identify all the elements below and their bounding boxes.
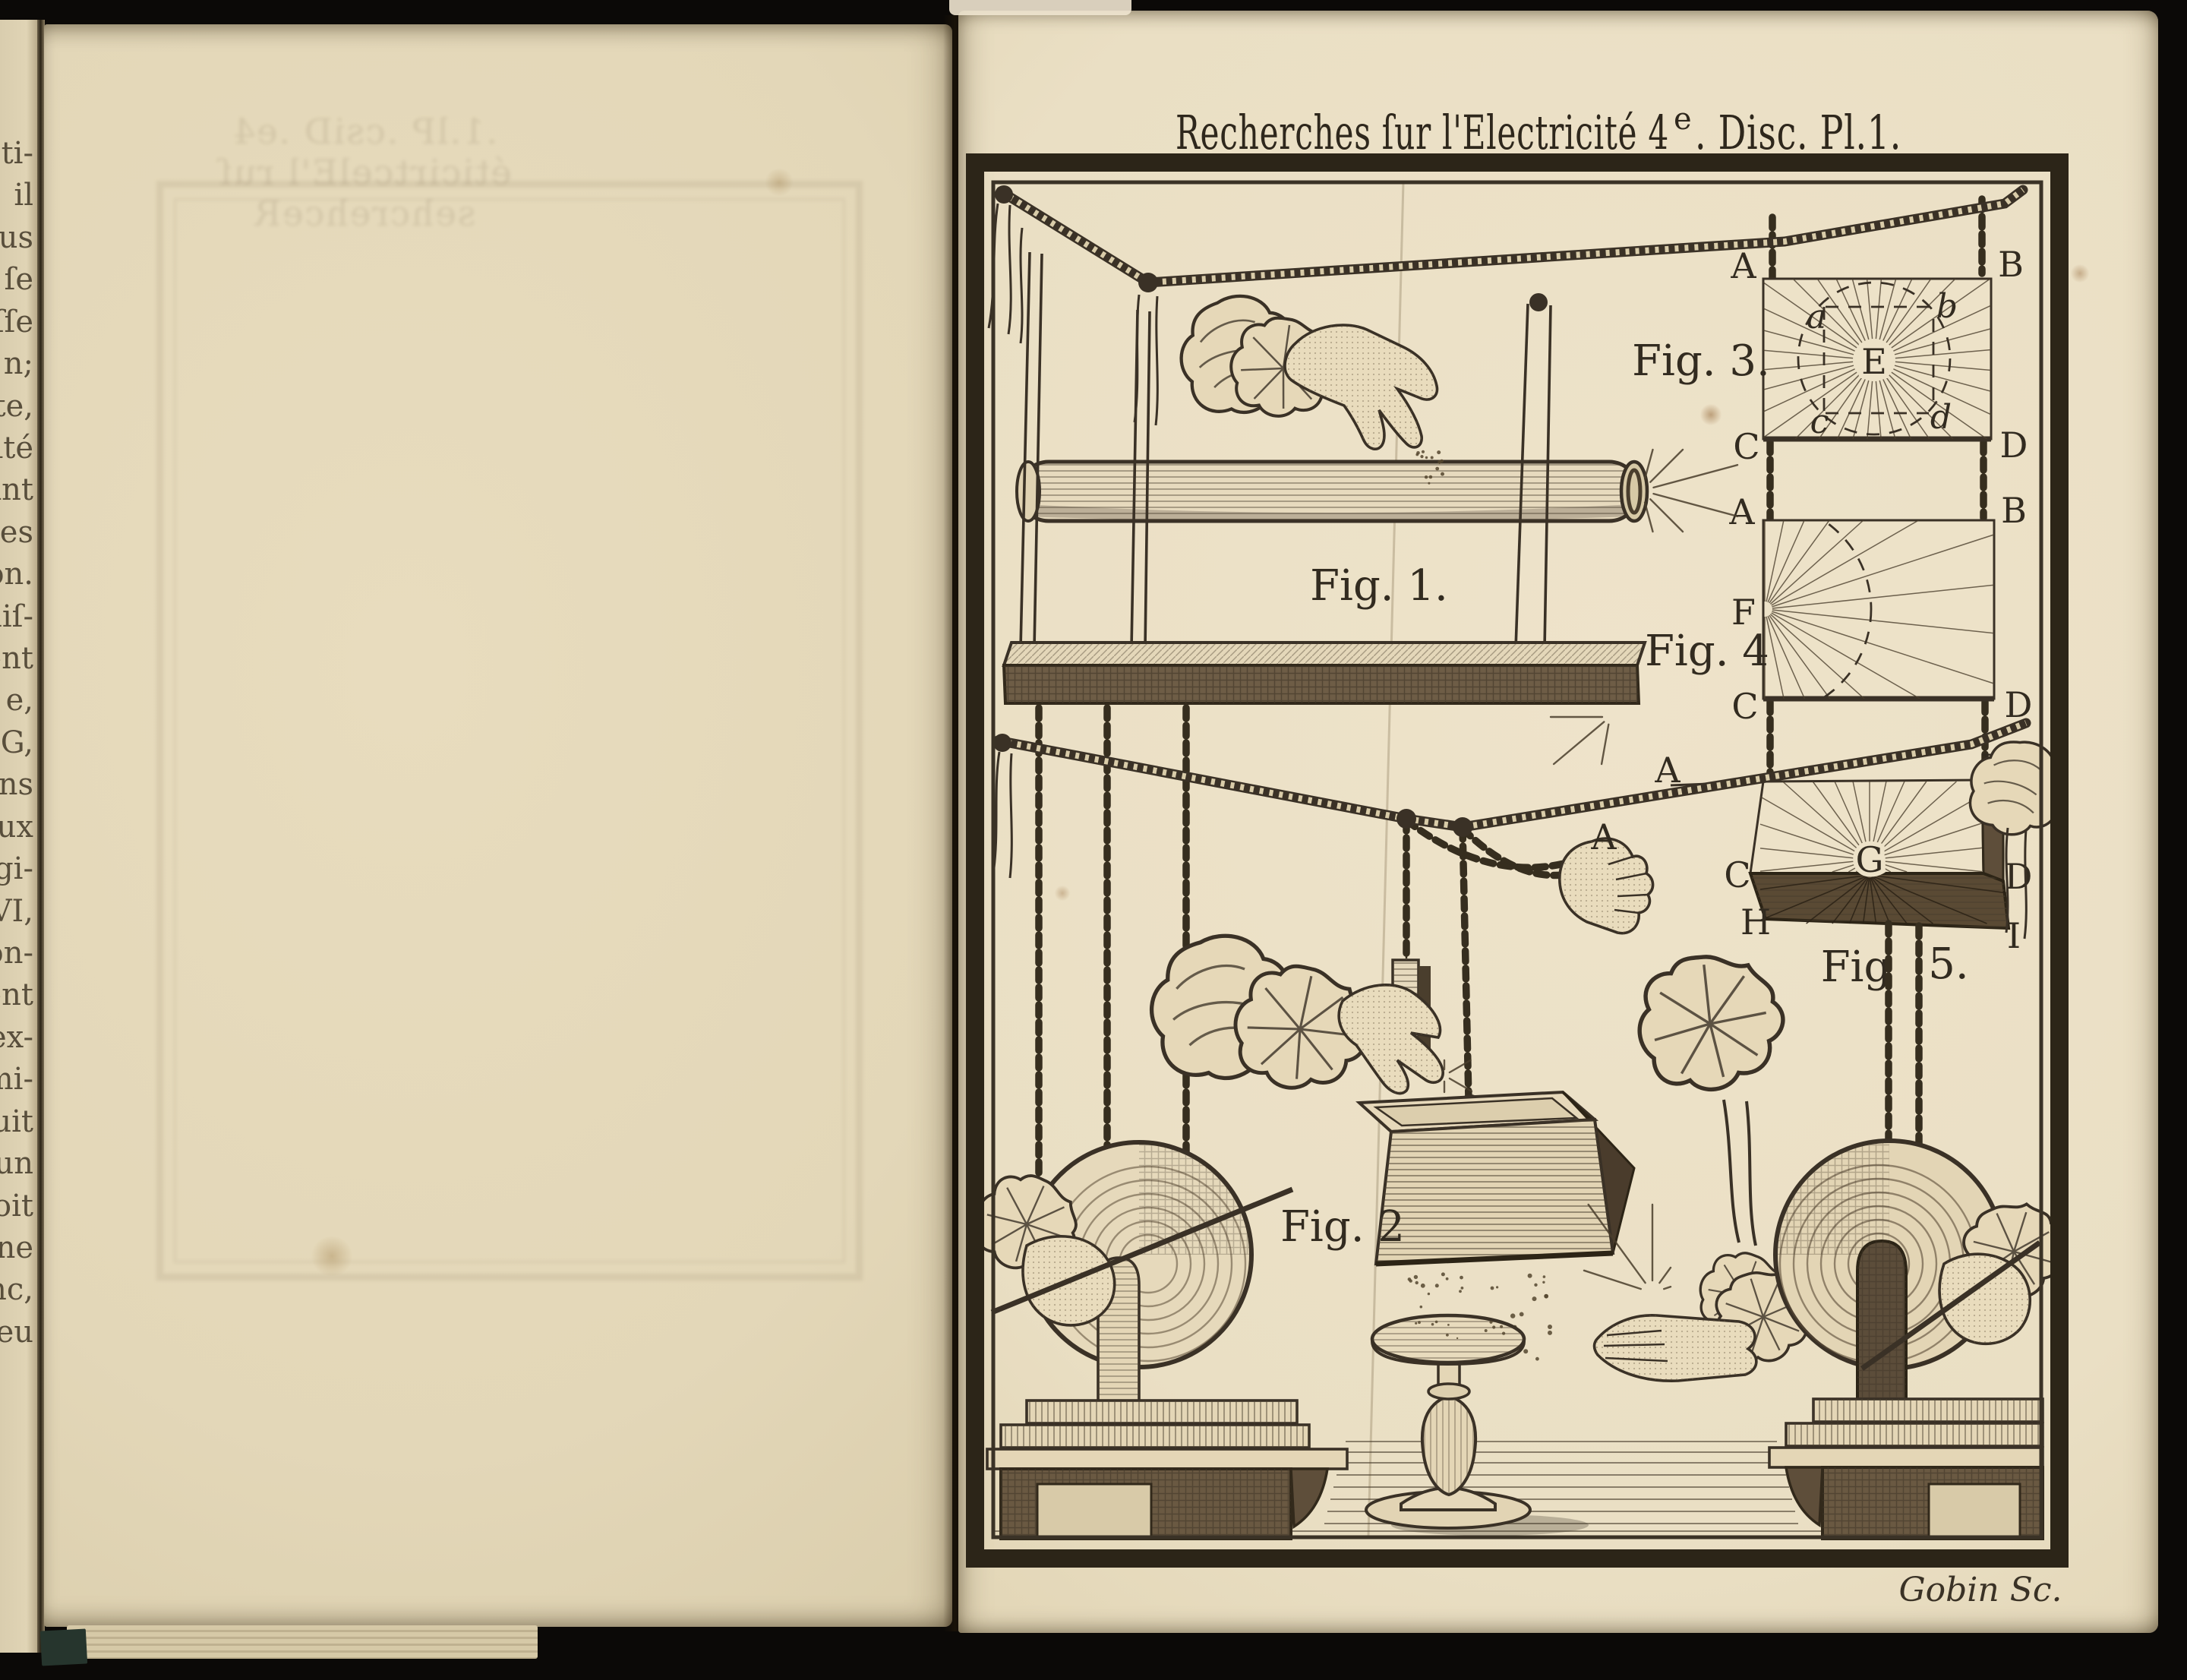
fig4-label: Fig. 4	[1645, 627, 1769, 676]
fig3-letter-B: B	[1998, 244, 2024, 285]
fig1-label: Fig. 1.	[1310, 561, 1448, 611]
cylinder-end-spray	[1645, 450, 1737, 532]
rope-knot	[1138, 273, 1158, 292]
rope-spray	[1551, 717, 1608, 764]
right-table-bracket	[1786, 1467, 1822, 1525]
fig3-diagram: A B C D a b c d E Fig. 3.	[1632, 244, 2028, 467]
right-tabletop	[1769, 1448, 2043, 1467]
left-table-panel	[1037, 1484, 1151, 1539]
rope-slings	[1021, 252, 1551, 649]
fig3-letter-d: d	[1930, 398, 1952, 437]
rope-tassel	[993, 752, 1011, 878]
fig2-label: Fig. 2	[1280, 1202, 1405, 1252]
fig5-letter-I: I	[2007, 915, 2021, 956]
left-tabletop	[987, 1449, 1347, 1469]
chain-hand-cuff	[1633, 949, 1790, 1097]
fig5-letter-C: C	[1724, 854, 1750, 895]
title-superscript: e	[1674, 102, 1692, 137]
rope-knot	[995, 185, 1013, 204]
fig3-letter-a: a	[1807, 298, 1826, 336]
chain-hand-cloth-strand	[1724, 1100, 1756, 1246]
right-machine	[1769, 1141, 2080, 1539]
left-globe-shading	[1139, 1142, 1251, 1255]
engraving-scene: A B C D a b c d E Fig. 3. A B C D F Fig.…	[962, 102, 2080, 1609]
right-globe-shading	[1775, 1141, 1889, 1255]
fig5-letter-H: H	[1740, 902, 1771, 943]
fig3-letter-C: C	[1733, 426, 1759, 467]
fig3-letter-c: c	[1810, 403, 1829, 441]
fig3-letter-E: E	[1861, 341, 1887, 382]
fig4-letter-B: B	[2001, 490, 2027, 531]
book-scan: { "book": { "left_page": { "fragments": …	[0, 0, 2187, 1680]
fig1-cylinder	[1017, 450, 1737, 532]
fig3-letter-A: A	[1730, 245, 1756, 286]
title-rest: . Disc. Pl.1.	[1695, 105, 1901, 160]
fig4-diagram: A B C D F Fig. 4	[1645, 490, 2032, 727]
pedestal-stand	[1366, 1315, 1589, 1536]
fig3-letter-D: D	[2000, 425, 2028, 466]
fig1-hand	[1170, 286, 1444, 485]
fig5-label: Fig	[1821, 943, 1892, 992]
fig5-letter-G: G	[1856, 839, 1884, 880]
engraving-plate: A B C D a b c d E Fig. 3. A B C D F Fig.…	[0, 0, 2187, 1680]
chain-label-A: A	[1590, 816, 1617, 857]
fig5-letter-A: A	[1654, 750, 1680, 791]
hanging-tube-and-hand	[1142, 927, 1472, 1101]
left-table-bracket	[1291, 1469, 1327, 1527]
fig1-board	[1004, 643, 1645, 703]
plate-title: Recherches ſur l'Electricité 4 e . Disc.…	[1176, 102, 1901, 160]
fig4-letter-A: A	[1728, 491, 1755, 532]
fig3-letter-b: b	[1936, 287, 1958, 326]
fig5-label-number: 5.	[1928, 939, 1968, 989]
engraver-signature: Gobin Sc.	[1899, 1571, 2062, 1609]
title-main: Recherches ſur l'Electricité 4	[1176, 105, 1669, 160]
fig4-letter-C: C	[1731, 686, 1758, 727]
fig5-letter-D: D	[2005, 856, 2033, 897]
fig1-hand-stipple	[1285, 325, 1437, 449]
right-table-panel	[1929, 1484, 2020, 1539]
fig3-label: Fig. 3.	[1632, 336, 1770, 386]
